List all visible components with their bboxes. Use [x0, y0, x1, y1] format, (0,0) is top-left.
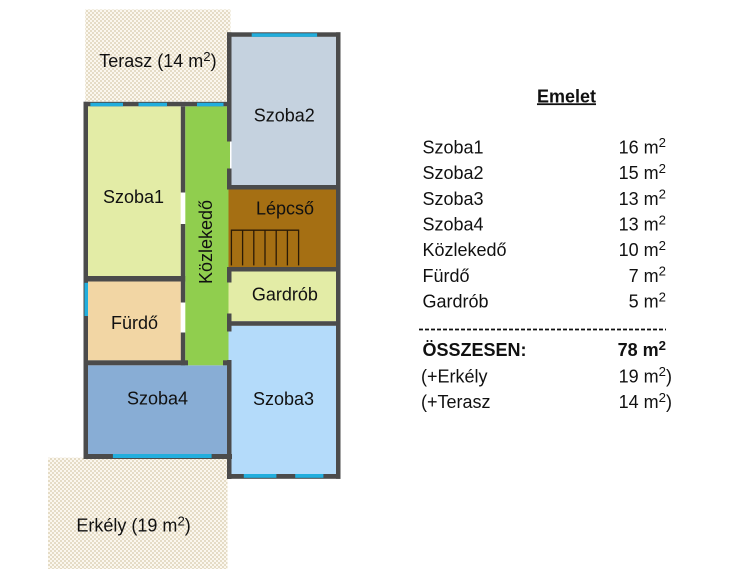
svg-text:Közlekedő: Közlekedő [196, 200, 216, 284]
svg-text:(+Terasz: (+Terasz [421, 392, 491, 412]
svg-text:Erkély (19 m2): Erkély (19 m2) [76, 513, 190, 535]
svg-text:Közlekedő: Közlekedő [423, 240, 507, 260]
svg-text:Szoba4: Szoba4 [127, 389, 188, 409]
svg-text:Fürdő: Fürdő [423, 266, 470, 286]
svg-text:ÖSSZESEN:: ÖSSZESEN: [423, 340, 527, 360]
svg-text:Szoba3: Szoba3 [423, 189, 484, 209]
svg-text:Fürdő: Fürdő [111, 313, 158, 333]
svg-text:Szoba1: Szoba1 [423, 137, 484, 157]
svg-text:Lépcső: Lépcső [256, 198, 314, 218]
svg-text:(+Erkély: (+Erkély [421, 366, 488, 386]
svg-text:Gardrób: Gardrób [252, 285, 318, 305]
svg-text:Szoba2: Szoba2 [423, 163, 484, 183]
svg-text:Szoba2: Szoba2 [254, 106, 315, 126]
svg-text:Gardrób: Gardrób [423, 292, 489, 312]
svg-text:Szoba4: Szoba4 [423, 215, 484, 235]
svg-text:Szoba1: Szoba1 [103, 187, 164, 207]
svg-text:Terasz (14 m2): Terasz (14 m2) [99, 49, 216, 71]
svg-text:Emelet: Emelet [537, 86, 596, 106]
svg-text:Szoba3: Szoba3 [253, 389, 314, 409]
